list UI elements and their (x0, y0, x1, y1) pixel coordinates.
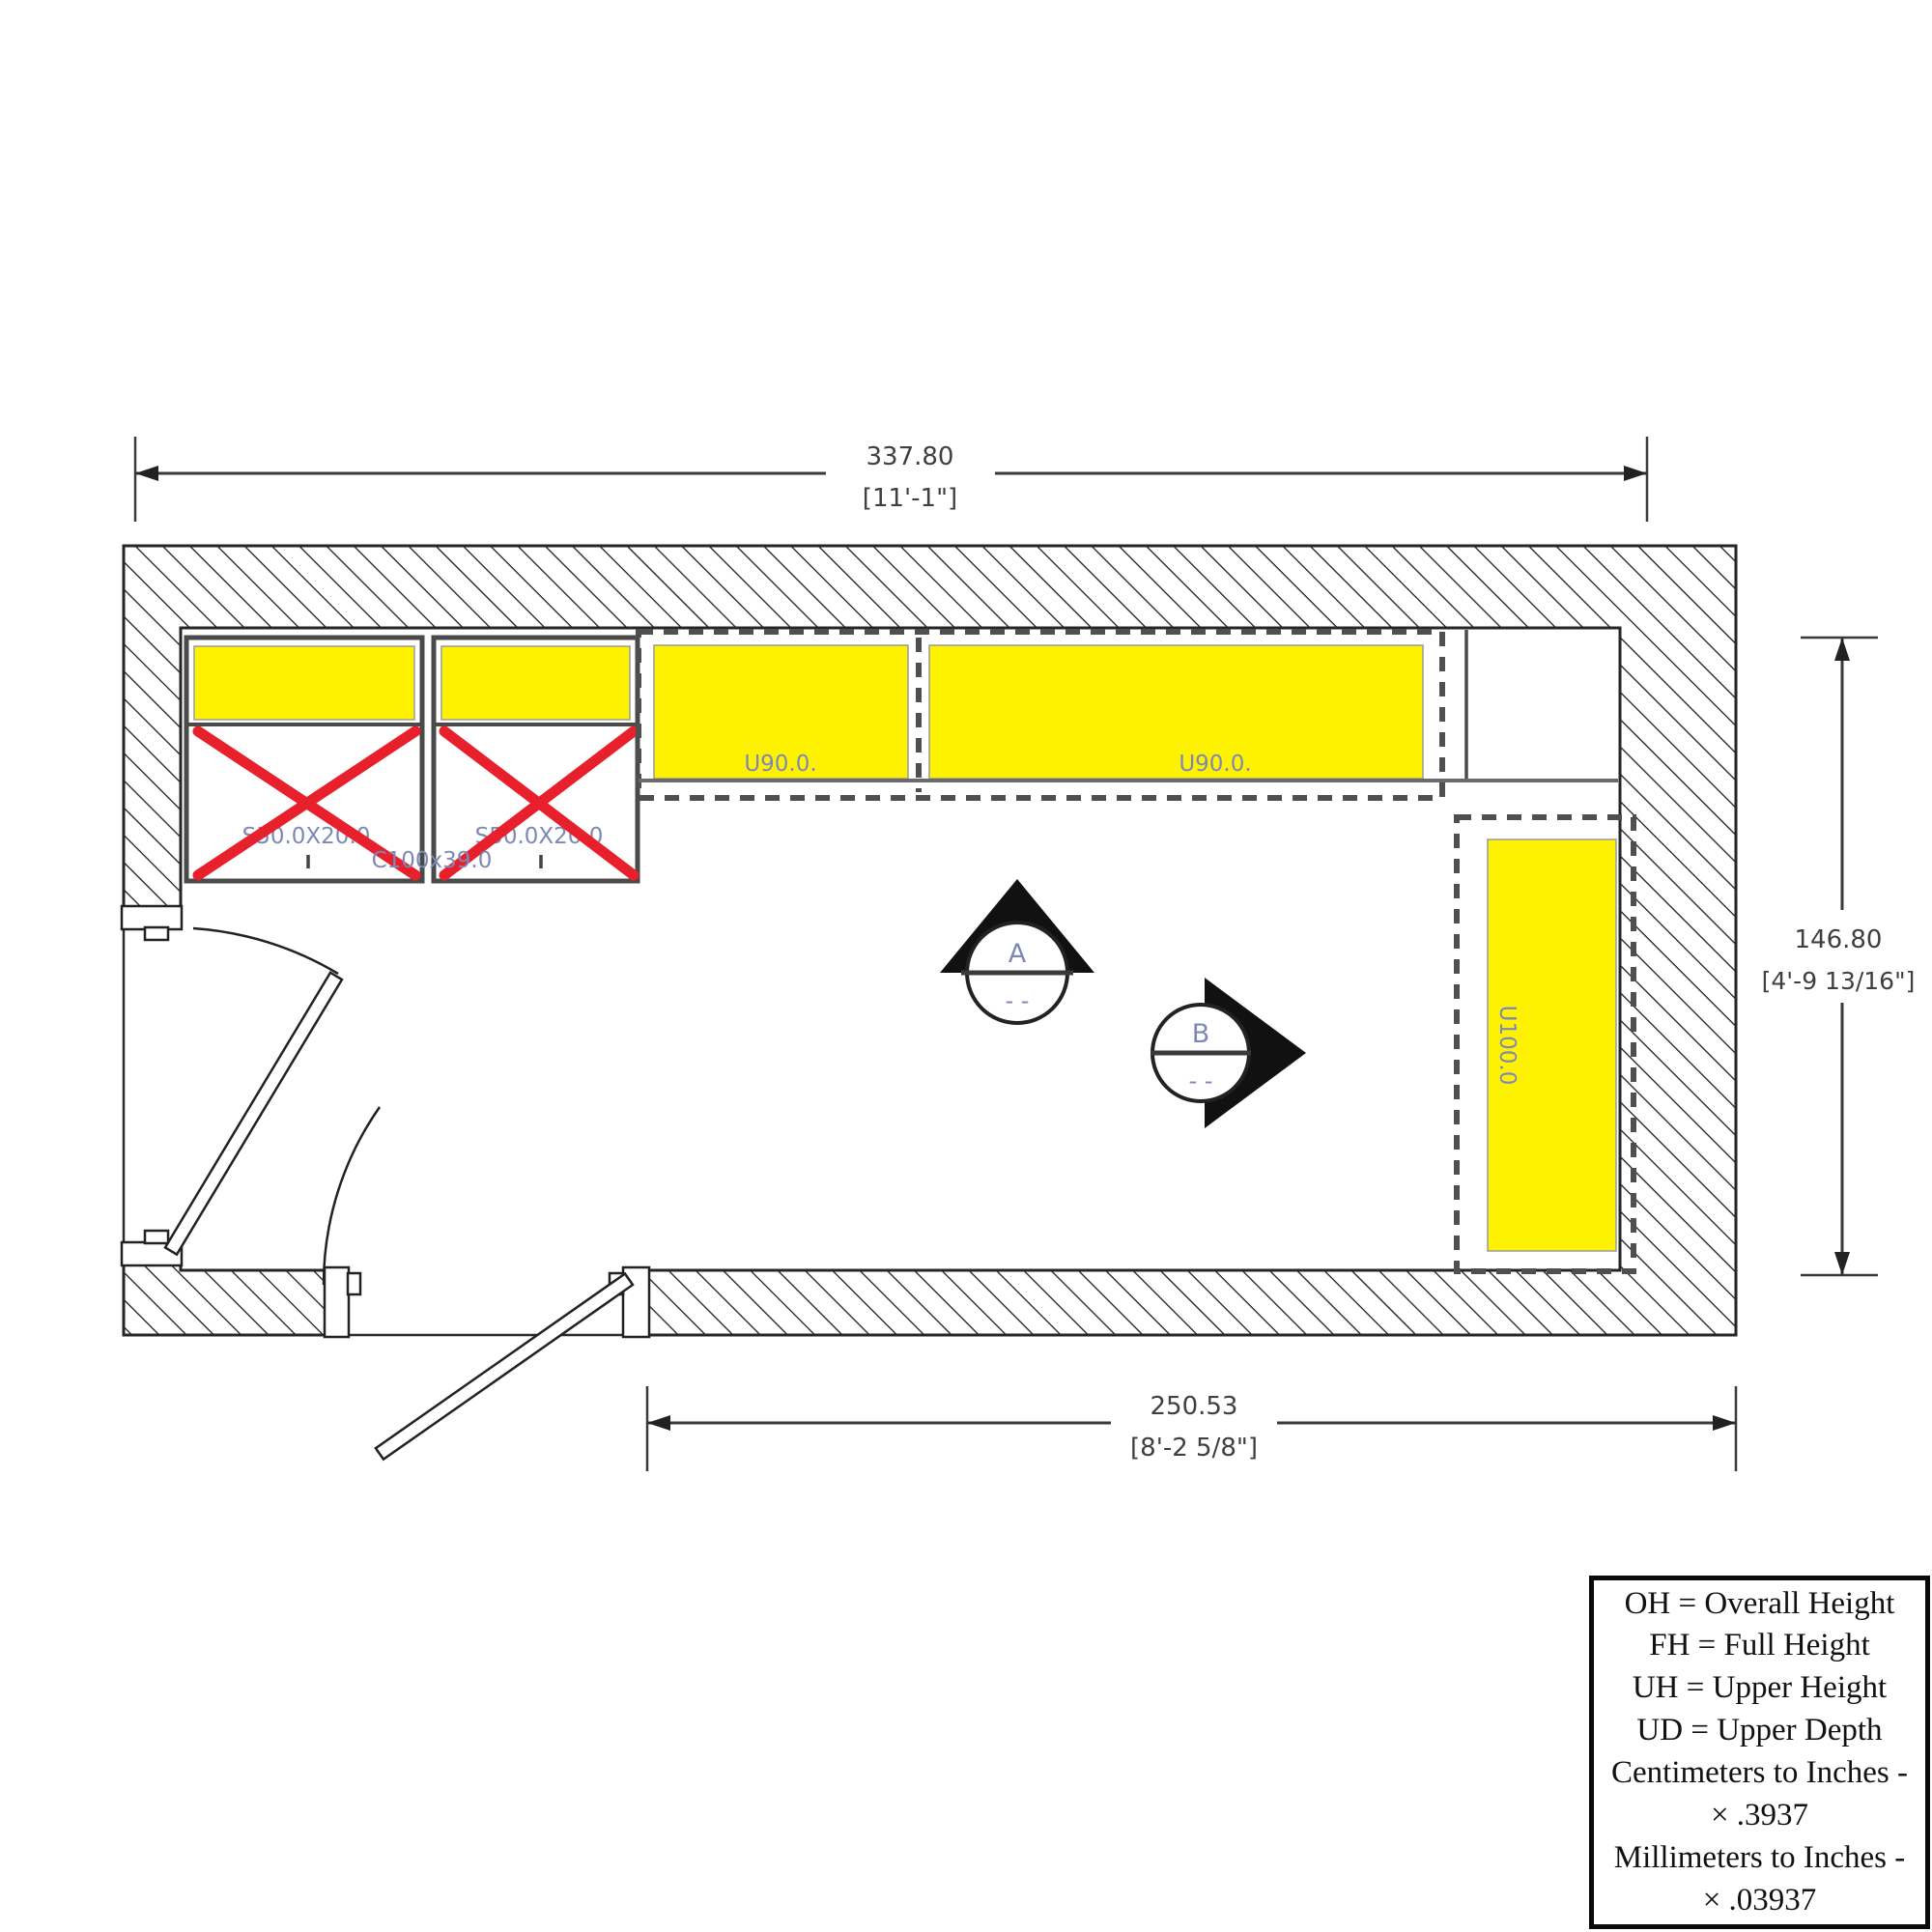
legend-box: OH = Overall Height FH = Full Height UH … (1589, 1576, 1930, 1929)
legend-line: UD = Upper Depth (1636, 1710, 1882, 1752)
legend-line: UH = Upper Height (1633, 1667, 1887, 1710)
dim-right-imperial: [4'-9 13/16"] (1762, 967, 1916, 995)
cabinet-yellow-strip (194, 646, 414, 720)
dim-arrow-up-icon (1834, 638, 1850, 661)
jamb-notch (145, 1231, 168, 1243)
tall-cabinet-label: U100.0 (1494, 1006, 1520, 1086)
dimension-right: 146.80 [4'-9 13/16"] (1739, 638, 1932, 1275)
legend-line: Centimeters to Inches - (1611, 1752, 1908, 1795)
legend-line: OH = Overall Height (1625, 1583, 1895, 1626)
dimension-bottom: 250.53 [8'-2 5/8"] (647, 1377, 1736, 1471)
marker-b-dashes: - - (1189, 1067, 1213, 1094)
crossed-cabinet-center-label: C100x39.0 (372, 848, 493, 873)
dim-arrow-left-icon (135, 466, 158, 481)
doors (165, 928, 633, 1460)
dim-bottom-value: 250.53 (1151, 1392, 1238, 1421)
left-door-opening (114, 921, 187, 1253)
crossed-cabinet-group: S50.0X20.0 S50.0X20.0 C100x39.0 (186, 638, 638, 881)
left-door-swing-arc (193, 928, 338, 974)
left-door-leaf (165, 973, 342, 1255)
dim-right-value: 146.80 (1795, 925, 1883, 954)
upper-cabinet-2-label: U90.0. (1179, 752, 1251, 777)
jamb-block (122, 906, 182, 929)
dim-arrow-right-icon (1713, 1415, 1736, 1431)
legend-line: FH = Full Height (1649, 1625, 1870, 1667)
tall-upper-cabinet: U100.0 (1457, 817, 1634, 1271)
cabinet-yellow-strip (441, 646, 630, 720)
jamb-notch (348, 1273, 360, 1294)
legend-line: × .03937 (1703, 1880, 1817, 1922)
legend-line: Millimeters to Inches - (1614, 1837, 1906, 1880)
floor-plan-page: S50.0X20.0 S50.0X20.0 C100x39.0 U90.0. U… (0, 0, 1932, 1932)
jamb-block (325, 1267, 349, 1337)
marker-b-letter: B (1192, 1019, 1210, 1049)
marker-a-dashes: - - (1006, 987, 1030, 1014)
bottom-door-swing-arc (324, 1107, 380, 1285)
dim-top-imperial: [11'-1"] (863, 484, 957, 513)
legend-line: × .3937 (1711, 1795, 1808, 1837)
elevation-marker-b: B - - (1151, 978, 1306, 1128)
dim-arrow-left-icon (647, 1415, 670, 1431)
jamb-notch (145, 927, 168, 940)
upper-cabinet-2 (929, 645, 1423, 779)
dim-top-value: 337.80 (867, 442, 954, 471)
dimension-top: 337.80 [11'-1"] (135, 427, 1647, 522)
elevation-marker-a: A - - (940, 879, 1094, 1023)
dim-arrow-right-icon (1624, 466, 1647, 481)
dim-arrow-down-icon (1834, 1252, 1850, 1275)
upper-cabinet-run: U90.0. U90.0. (639, 630, 1618, 798)
upper-cabinet-1-label: U90.0. (744, 752, 816, 777)
marker-a-letter: A (1009, 939, 1027, 969)
dim-bottom-imperial: [8'-2 5/8"] (1130, 1434, 1258, 1463)
